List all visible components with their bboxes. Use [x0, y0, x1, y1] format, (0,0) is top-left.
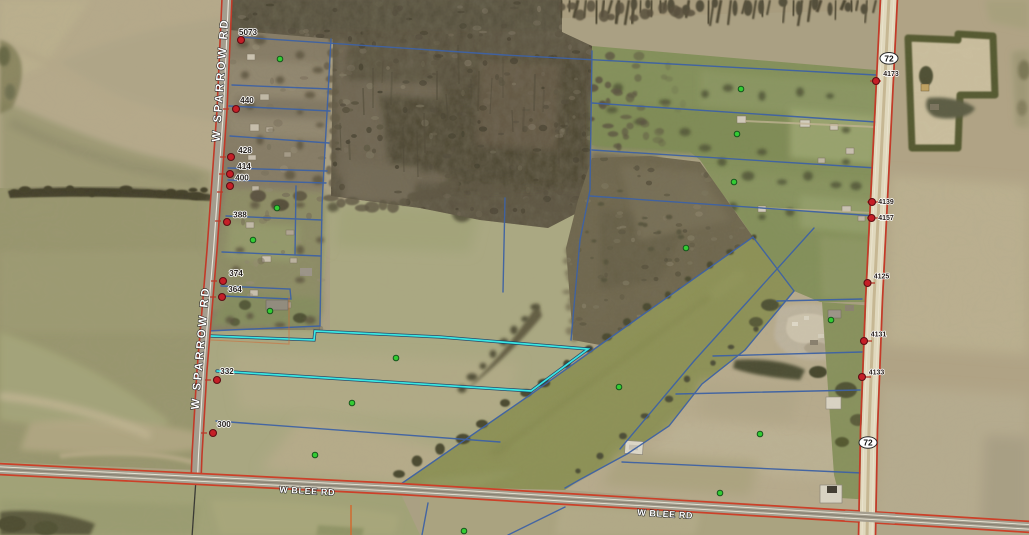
- svg-text:72: 72: [884, 53, 894, 63]
- svg-text:4139: 4139: [878, 199, 894, 206]
- svg-text:400: 400: [235, 174, 249, 183]
- svg-text:414: 414: [237, 162, 251, 171]
- svg-text:4173: 4173: [883, 71, 899, 78]
- svg-text:440: 440: [240, 96, 254, 105]
- svg-text:300: 300: [217, 420, 231, 429]
- svg-text:332: 332: [220, 367, 234, 376]
- svg-text:4133: 4133: [869, 370, 885, 377]
- svg-text:5073: 5073: [239, 28, 258, 37]
- svg-text:364: 364: [228, 285, 242, 294]
- svg-text:388: 388: [233, 211, 247, 220]
- svg-text:374: 374: [229, 269, 243, 278]
- svg-text:428: 428: [238, 146, 252, 155]
- svg-text:72: 72: [863, 438, 873, 448]
- svg-text:4131: 4131: [871, 332, 887, 339]
- svg-text:4125: 4125: [874, 274, 890, 281]
- svg-text:4157: 4157: [878, 215, 894, 222]
